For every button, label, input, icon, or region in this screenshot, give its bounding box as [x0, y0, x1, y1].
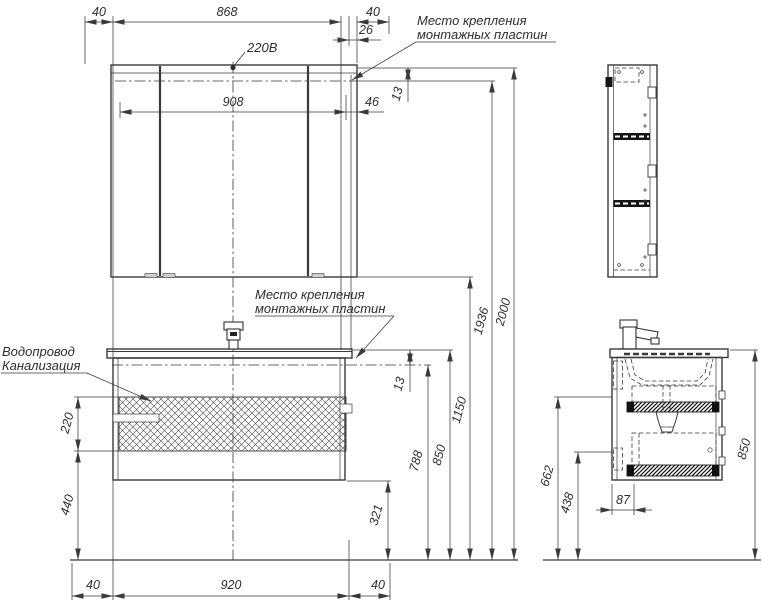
drawer-details: [614, 361, 726, 476]
countertop-front: [107, 349, 352, 358]
dimensions-top: 40 868 40 26 908 46 13: [85, 5, 408, 112]
dimensions-bottom: 40 920 40: [72, 578, 390, 596]
mounting-mid-line2: монтажных пластин: [255, 301, 385, 316]
mirror-side-shelf: [614, 133, 651, 207]
dimensions-left: 220 440: [57, 397, 78, 560]
dim-zone-height: 220: [57, 411, 76, 436]
vanity-side-body: [612, 358, 722, 481]
dim-h438: 438: [558, 491, 577, 515]
mounting-top-line2: монтажных пластин: [417, 27, 547, 42]
dim-top-plate-span: 868: [217, 5, 238, 19]
dim-h321: 321: [367, 503, 386, 527]
dim-inner-width: 908: [223, 95, 244, 109]
power-label: 220В: [246, 40, 278, 55]
power-outlet-marker: [230, 52, 245, 70]
vanity-side: [610, 320, 728, 480]
dim-side-h850: 850: [735, 437, 754, 461]
dim-mirror-plate-gap: 13: [389, 85, 406, 102]
dim-bottom-margin-left: 40: [86, 578, 100, 592]
faucet-side: [620, 320, 659, 349]
mounting-mid-line1: Место крепления: [255, 287, 365, 302]
dim-top-margin-right: 40: [366, 5, 380, 19]
drawer-rail-top: [627, 402, 719, 412]
hinge-tabs: [648, 87, 656, 255]
technical-drawing: 40 868 40 26 908 46 13 220 440 40 920 40: [0, 0, 762, 600]
dim-bottom-width: 920: [221, 578, 242, 592]
dim-h662: 662: [538, 464, 557, 488]
sink-bowl-side: [624, 354, 713, 385]
mounting-plates-note-mid: Место крепления монтажных пластин: [255, 287, 394, 358]
drawer-rail-bottom: [627, 465, 719, 476]
water-sewer-note: Водопровод Канализация: [1, 344, 151, 401]
dim-vanity-plate-gap: 13: [391, 375, 408, 392]
dim-h2000: 2000: [493, 297, 514, 328]
dim-side-offset: 46: [365, 95, 379, 109]
mounting-top-line1: Место крепления: [417, 13, 527, 28]
dimensions-right: 13 321 788 850 1150 1936 2000: [367, 68, 514, 560]
mirror-cabinet-side: [606, 65, 658, 277]
dim-h1150: 1150: [449, 395, 469, 425]
dim-top-margin-left: 40: [92, 5, 106, 19]
installation-drawing-page: 40 868 40 26 908 46 13 220 440 40 920 40: [0, 0, 762, 600]
water-label: Водопровод: [2, 344, 75, 359]
dim-h788: 788: [407, 449, 426, 473]
sewer-label: Канализация: [2, 358, 80, 373]
dim-top-offset: 26: [358, 23, 373, 37]
extension-lines: [72, 16, 758, 600]
annotations: 220В Место крепления монтажных пластин М…: [1, 13, 556, 401]
faucet-front: [224, 322, 243, 349]
dim-bottom-margin-right: 40: [371, 578, 385, 592]
pipes-zone-hatch: [113, 397, 352, 451]
dim-h1936: 1936: [471, 306, 492, 337]
dim-h850: 850: [430, 443, 449, 467]
mounting-plates-note-top: Место крепления монтажных пластин: [352, 13, 556, 80]
dim-d87: 87: [616, 493, 631, 507]
mounting-bracket-side: [606, 77, 613, 87]
dim-zone-bottom: 440: [58, 493, 77, 517]
